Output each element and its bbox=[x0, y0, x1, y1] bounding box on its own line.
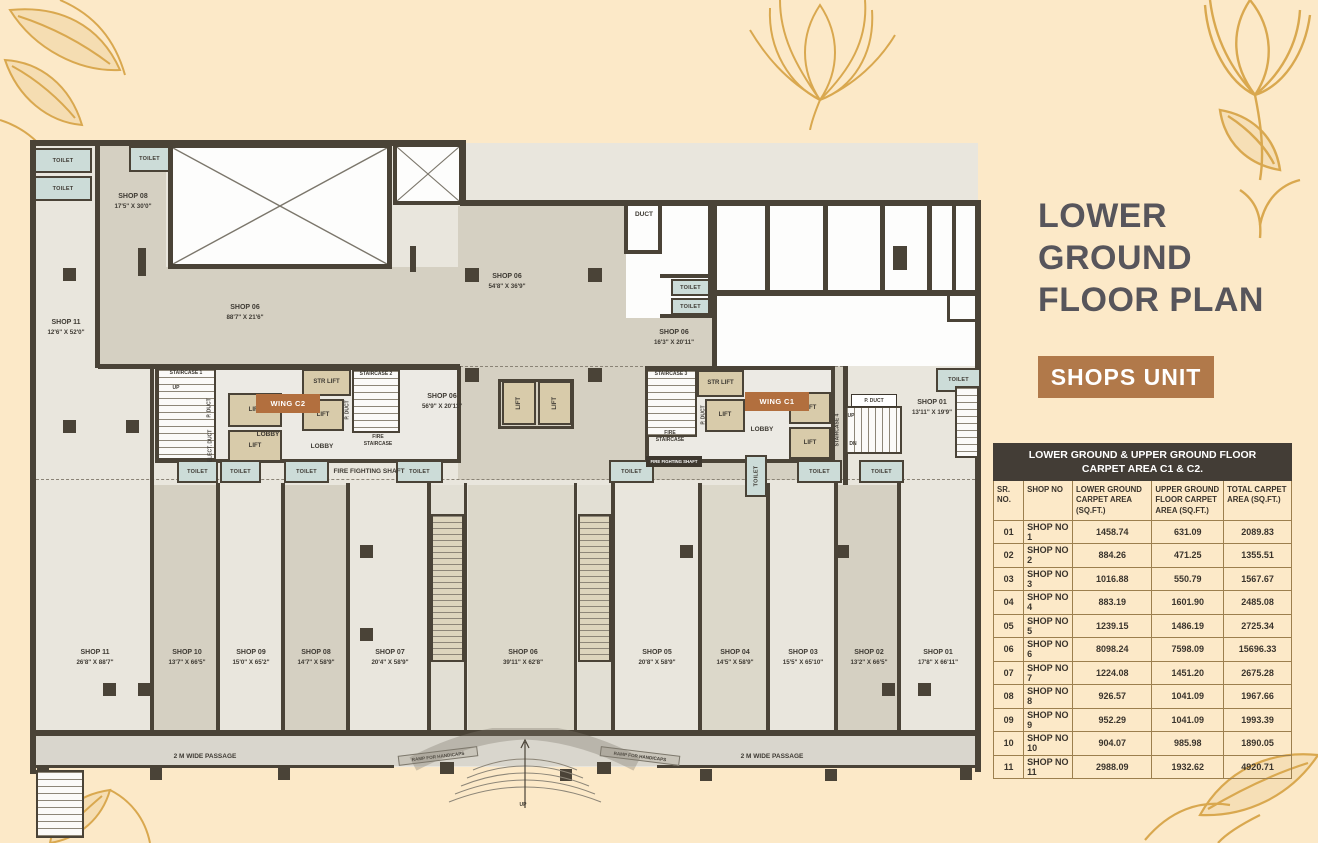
value-cell: 1239.15 bbox=[1073, 614, 1152, 638]
wall bbox=[63, 420, 76, 433]
table-row: 07SHOP NO 71224.081451.202675.28 bbox=[994, 661, 1292, 685]
wall bbox=[63, 268, 76, 281]
floor-fill bbox=[468, 485, 574, 731]
stair-bottom-left bbox=[36, 770, 84, 838]
wall bbox=[281, 483, 285, 733]
value-cell: 1601.90 bbox=[1152, 591, 1224, 615]
wall bbox=[498, 379, 501, 428]
column-header: UPPER GROUND FLOOR CARPET AREA (SQ.FT.) bbox=[1152, 481, 1224, 520]
wall bbox=[624, 250, 662, 254]
wall bbox=[611, 483, 615, 733]
wall bbox=[126, 420, 139, 433]
carpet-area-table: LOWER GROUND & UPPER GROUND FLOORCARPET … bbox=[993, 443, 1292, 779]
bshop-09: SHOP 0915'0" X 65'2" bbox=[222, 648, 280, 672]
toilet-r1: TOILET bbox=[671, 279, 710, 296]
value-cell: 01 bbox=[994, 520, 1024, 544]
lift-ctr2: LIFT bbox=[538, 381, 572, 425]
bshop-06: SHOP 0639'11" X 62'8" bbox=[474, 648, 572, 672]
wall bbox=[975, 200, 981, 772]
value-cell: 1355.51 bbox=[1224, 544, 1292, 568]
wall bbox=[660, 274, 710, 278]
table-row: 03SHOP NO 31016.88550.791567.67 bbox=[994, 567, 1292, 591]
void-area-large bbox=[168, 143, 392, 269]
column-header: LOWER GROUND CARPET AREA (SQ.FT.) bbox=[1073, 481, 1152, 520]
table-row: 10SHOP NO 10904.07985.981890.05 bbox=[994, 732, 1292, 756]
wall bbox=[897, 483, 901, 733]
value-cell: 04 bbox=[994, 591, 1024, 615]
wall bbox=[138, 248, 146, 276]
value-cell: 2485.08 bbox=[1224, 591, 1292, 615]
stair-right-strip bbox=[955, 386, 979, 458]
fire-st-3: FIRESTAIRCASE bbox=[650, 430, 690, 448]
shop-name-cell: SHOP NO 1 bbox=[1024, 520, 1073, 544]
title-line-3: FLOOR PLAN bbox=[1038, 280, 1298, 322]
value-cell: 2988.09 bbox=[1073, 755, 1152, 779]
page: TOILETTOILETTOILETTOILETTOILETTOILETTOIL… bbox=[0, 0, 1318, 843]
shop-name-cell: SHOP NO 7 bbox=[1024, 661, 1073, 685]
table-row: 08SHOP NO 8926.571041.091967.66 bbox=[994, 685, 1292, 709]
floor-fill bbox=[712, 206, 978, 366]
value-cell: 7598.09 bbox=[1152, 638, 1224, 662]
value-cell: 471.25 bbox=[1152, 544, 1224, 568]
value-cell: 1451.20 bbox=[1152, 661, 1224, 685]
pduct-1: P. DUCT bbox=[204, 390, 216, 426]
shop-name-cell: SHOP NO 2 bbox=[1024, 544, 1073, 568]
stair4-lbl: STAIRCASE 4 bbox=[831, 406, 843, 454]
wall bbox=[918, 683, 931, 696]
lift-c1: LIFT bbox=[705, 399, 745, 432]
wall bbox=[834, 483, 838, 733]
wall bbox=[36, 765, 394, 768]
value-cell: 05 bbox=[994, 614, 1024, 638]
strlift-2: STR LIFT bbox=[697, 370, 744, 397]
table-row: 04SHOP NO 4883.191601.902485.08 bbox=[994, 591, 1292, 615]
wall bbox=[574, 483, 577, 733]
toilet-c1a: TOILET bbox=[797, 460, 842, 483]
stair1-t: STAIRCASE 1 bbox=[158, 370, 214, 379]
value-cell: 550.79 bbox=[1152, 567, 1224, 591]
title-line-1: LOWER bbox=[1038, 196, 1298, 238]
value-cell: 03 bbox=[994, 567, 1024, 591]
wall bbox=[216, 483, 220, 733]
wall bbox=[947, 319, 980, 322]
wall bbox=[278, 768, 290, 780]
wall bbox=[825, 769, 837, 781]
floral-decor-top-center bbox=[720, 0, 920, 130]
toilet-tl-3: TOILET bbox=[129, 146, 170, 172]
lobby-3: LOBBY bbox=[740, 423, 784, 435]
wall bbox=[465, 368, 479, 382]
floor-fill bbox=[702, 485, 766, 731]
value-cell: 883.19 bbox=[1073, 591, 1152, 615]
wall bbox=[560, 769, 572, 781]
value-cell: 926.57 bbox=[1073, 685, 1152, 709]
bshop-08: SHOP 0814'7" X 58'9" bbox=[287, 648, 345, 672]
wall bbox=[698, 483, 702, 733]
toilet-c1v: TOILET bbox=[745, 455, 767, 497]
table-title: LOWER GROUND & UPPER GROUND FLOORCARPET … bbox=[994, 444, 1292, 481]
wall bbox=[880, 206, 885, 294]
lift-c3: LIFT bbox=[789, 427, 831, 459]
floor-fill bbox=[154, 485, 216, 731]
escalator-left bbox=[431, 514, 464, 662]
wall bbox=[464, 483, 467, 733]
column-header: SHOP NO bbox=[1024, 481, 1073, 520]
shop-name-cell: SHOP NO 11 bbox=[1024, 755, 1073, 779]
value-cell: 1041.09 bbox=[1152, 708, 1224, 732]
wall bbox=[952, 206, 956, 294]
wall bbox=[700, 769, 712, 781]
floor-fill bbox=[285, 485, 346, 731]
wall bbox=[150, 368, 154, 733]
shop06c: SHOP 0616'3" X 20'11" bbox=[630, 328, 718, 350]
page-title: LOWER GROUND FLOOR PLAN bbox=[1038, 196, 1298, 321]
wall bbox=[927, 206, 932, 294]
table-row: 11SHOP NO 112988.091932.624920.71 bbox=[994, 755, 1292, 779]
title-line-2: GROUND bbox=[1038, 238, 1298, 280]
shop-name-cell: SHOP NO 10 bbox=[1024, 732, 1073, 756]
wall bbox=[138, 683, 151, 696]
shop-name-cell: SHOP NO 4 bbox=[1024, 591, 1073, 615]
wall bbox=[766, 483, 770, 733]
bshop-05: SHOP 0520'8" X 58'9" bbox=[620, 648, 694, 672]
wall bbox=[103, 683, 116, 696]
wall bbox=[765, 206, 770, 294]
shops-unit-button[interactable]: SHOPS UNIT bbox=[1038, 356, 1214, 398]
value-cell: 02 bbox=[994, 544, 1024, 568]
wall bbox=[150, 768, 162, 780]
shop11t: SHOP 1112'6" X 52'0" bbox=[38, 318, 94, 340]
pduct-2: P. DUCT bbox=[342, 390, 354, 430]
stair2-t: STAIRCASE 2 bbox=[352, 371, 400, 380]
shop06d: SHOP 0656'9" X 20'11" bbox=[398, 392, 486, 414]
ffs-2: FIRE FIGHTING SHAFT bbox=[336, 466, 402, 476]
wing-c2: WING C2 bbox=[256, 394, 320, 413]
wall bbox=[893, 246, 907, 270]
bshop-11: SHOP 1126'8" X 88'7" bbox=[50, 648, 140, 672]
bshop-03: SHOP 0315'5" X 65'10" bbox=[772, 648, 834, 672]
shop-name-cell: SHOP NO 6 bbox=[1024, 638, 1073, 662]
shop-name-cell: SHOP NO 5 bbox=[1024, 614, 1073, 638]
value-cell: 07 bbox=[994, 661, 1024, 685]
value-cell: 1932.62 bbox=[1152, 755, 1224, 779]
table-row: 02SHOP NO 2884.26471.251355.51 bbox=[994, 544, 1292, 568]
dn-s4: DN bbox=[845, 440, 861, 448]
table-row: 06SHOP NO 68098.247598.0915696.33 bbox=[994, 638, 1292, 662]
wall bbox=[680, 545, 693, 558]
escalator-right bbox=[578, 514, 611, 662]
pduct-3: P. DUCT bbox=[698, 396, 710, 434]
column-header: SR. NO. bbox=[994, 481, 1024, 520]
fire-st-2: FIRESTAIRCASE bbox=[358, 434, 398, 452]
value-cell: 1458.74 bbox=[1073, 520, 1152, 544]
value-cell: 1041.09 bbox=[1152, 685, 1224, 709]
value-cell: 08 bbox=[994, 685, 1024, 709]
table-row: 09SHOP NO 9952.291041.091993.39 bbox=[994, 708, 1292, 732]
stair3-t: STAIRCASE 3 bbox=[646, 371, 696, 380]
bshop-01: SHOP 0117'8" X 66'11" bbox=[903, 648, 973, 672]
shop06a: SHOP 0688'7" X 21'6" bbox=[200, 303, 290, 325]
value-cell: 2675.28 bbox=[1224, 661, 1292, 685]
value-cell: 952.29 bbox=[1073, 708, 1152, 732]
wall bbox=[410, 246, 416, 272]
passage-2: 2 M WIDE PASSAGE bbox=[712, 750, 832, 762]
up-s1: UP bbox=[168, 384, 184, 392]
bshop-02: SHOP 0213'2" X 66'5" bbox=[840, 648, 898, 672]
shop08t: SHOP 0817'5" X 30'0" bbox=[98, 192, 168, 214]
pduct-box: P. DUCT bbox=[851, 394, 897, 407]
wall bbox=[588, 368, 602, 382]
value-cell: 985.98 bbox=[1152, 732, 1224, 756]
column-header: TOTAL CARPET AREA (SQ.FT.) bbox=[1224, 481, 1292, 520]
wall bbox=[30, 140, 36, 774]
table-row: 01SHOP NO 11458.74631.092089.83 bbox=[994, 520, 1292, 544]
value-cell: 884.26 bbox=[1073, 544, 1152, 568]
wing-c1: WING C1 bbox=[745, 392, 809, 411]
void-area-small bbox=[393, 143, 463, 205]
shop-name-cell: SHOP NO 9 bbox=[1024, 708, 1073, 732]
value-cell: 1993.39 bbox=[1224, 708, 1292, 732]
bshop-07: SHOP 0720'4" X 58'9" bbox=[356, 648, 424, 672]
wall bbox=[960, 768, 972, 780]
toilet-tl-1: TOILET bbox=[34, 148, 92, 173]
wall bbox=[498, 426, 574, 429]
lobby-1: LOBBY bbox=[248, 428, 288, 440]
wall bbox=[823, 206, 828, 294]
ffs-1: FIRE FIGHTING SHAFT bbox=[646, 456, 702, 467]
wall bbox=[882, 683, 895, 696]
wall bbox=[360, 628, 373, 641]
toilet-c1b: TOILET bbox=[859, 460, 904, 483]
value-cell: 09 bbox=[994, 708, 1024, 732]
toilet-r2: TOILET bbox=[671, 298, 710, 315]
value-cell: 4920.71 bbox=[1224, 755, 1292, 779]
value-cell: 2089.83 bbox=[1224, 520, 1292, 544]
value-cell: 2725.34 bbox=[1224, 614, 1292, 638]
bshop-04: SHOP 0414'5" X 58'9" bbox=[704, 648, 766, 672]
value-cell: 1890.05 bbox=[1224, 732, 1292, 756]
value-cell: 8098.24 bbox=[1073, 638, 1152, 662]
value-cell: 15696.33 bbox=[1224, 638, 1292, 662]
value-cell: 904.07 bbox=[1073, 732, 1152, 756]
duct-t: DUCT bbox=[627, 208, 661, 220]
shop06b: SHOP 0654'8" X 36'9" bbox=[462, 272, 552, 294]
value-cell: 06 bbox=[994, 638, 1024, 662]
wall bbox=[712, 290, 981, 296]
toilet-m3: TOILET bbox=[284, 460, 329, 483]
value-cell: 1567.67 bbox=[1224, 567, 1292, 591]
up-3: UP bbox=[514, 800, 532, 809]
wall bbox=[657, 765, 978, 768]
value-cell: 10 bbox=[994, 732, 1024, 756]
bshop-10: SHOP 1013'7" X 66'5" bbox=[158, 648, 216, 672]
up-s4: UP bbox=[843, 412, 859, 420]
value-cell: 631.09 bbox=[1152, 520, 1224, 544]
table-row: 05SHOP NO 51239.151486.192725.34 bbox=[994, 614, 1292, 638]
table-header-row: SR. NO.SHOP NOLOWER GROUND CARPET AREA (… bbox=[994, 481, 1292, 520]
wall bbox=[360, 545, 373, 558]
wall bbox=[457, 366, 461, 463]
value-cell: 1967.66 bbox=[1224, 685, 1292, 709]
wall bbox=[588, 268, 602, 282]
educt-1: ELECT. DUCT bbox=[204, 428, 216, 464]
value-cell: 1486.19 bbox=[1152, 614, 1224, 638]
value-cell: 11 bbox=[994, 755, 1024, 779]
lift-ctr1: LIFT bbox=[502, 381, 536, 425]
toilet-m2: TOILET bbox=[220, 460, 261, 483]
lobby-2: LOBBY bbox=[300, 440, 344, 452]
wall bbox=[836, 545, 849, 558]
wall bbox=[346, 483, 350, 733]
wall bbox=[95, 146, 100, 368]
wall bbox=[460, 200, 981, 206]
passage-1: 2 M WIDE PASSAGE bbox=[145, 750, 265, 762]
shop-name-cell: SHOP NO 8 bbox=[1024, 685, 1073, 709]
toilet-tl-2: TOILET bbox=[34, 176, 92, 201]
value-cell: 1224.08 bbox=[1073, 661, 1152, 685]
value-cell: 1016.88 bbox=[1073, 567, 1152, 591]
shop-name-cell: SHOP NO 3 bbox=[1024, 567, 1073, 591]
